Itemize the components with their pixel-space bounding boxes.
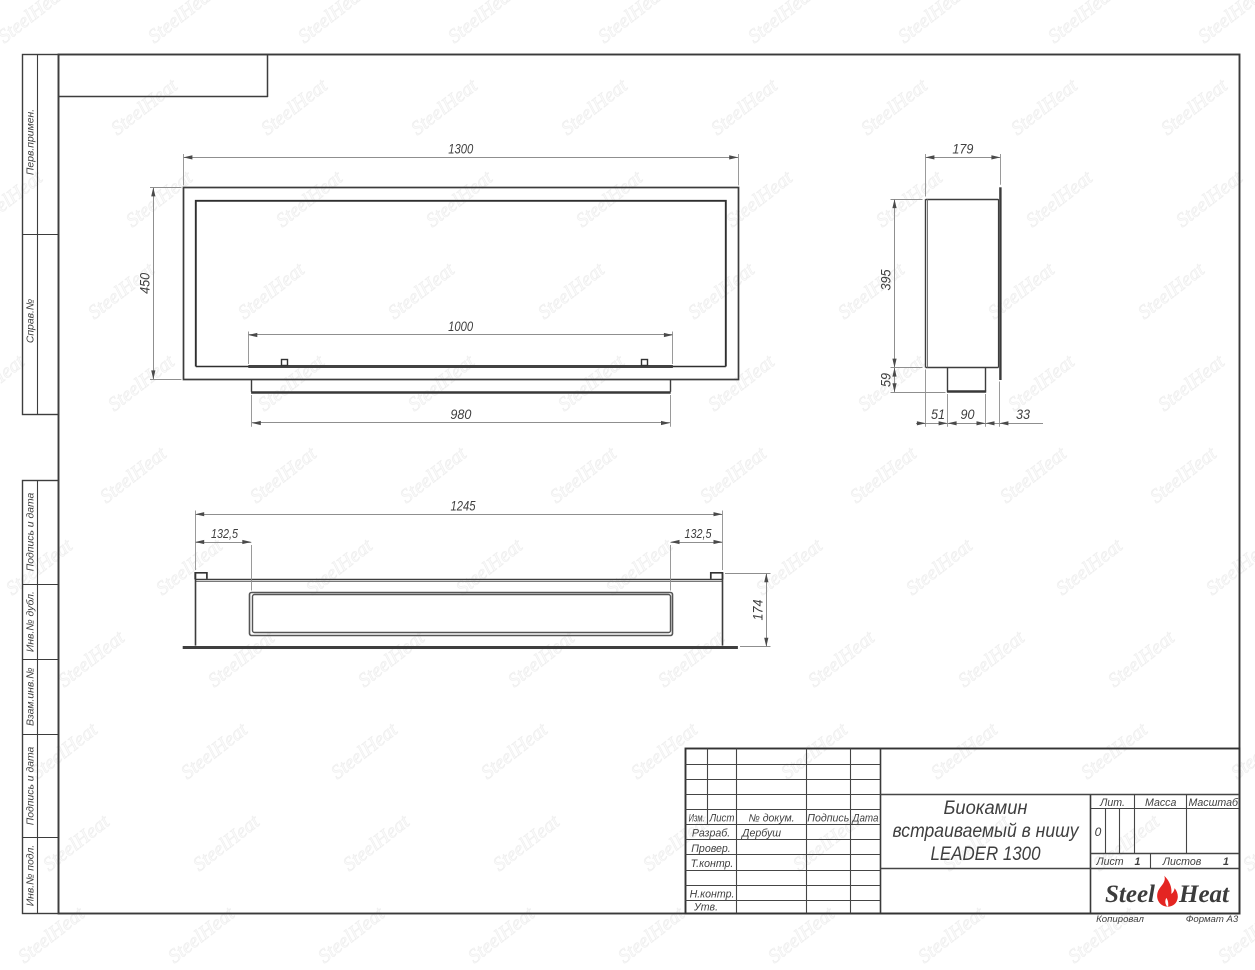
svg-text:SteelHeat: SteelHeat [1157,74,1232,139]
svg-text:SteelHeat: SteelHeat [152,534,227,599]
svg-text:SteelHeat: SteelHeat [104,350,179,415]
svg-text:1: 1 [1135,856,1141,868]
svg-text:SteelHeat: SteelHeat [339,810,414,875]
svg-text:SteelHeat: SteelHeat [96,442,171,507]
svg-text:SteelHeat: SteelHeat [464,902,539,967]
svg-text:SteelHeat: SteelHeat [272,166,347,231]
svg-text:SteelHeat: SteelHeat [954,626,1029,691]
svg-text:SteelHeat: SteelHeat [984,258,1059,323]
svg-text:SteelHeat: SteelHeat [164,902,239,967]
svg-text:встраиваемый в нишу: встраиваемый в нишу [893,821,1080,842]
svg-text:SteelHeat: SteelHeat [246,442,321,507]
svg-text:SteelHeat: SteelHeat [107,74,182,139]
svg-text:Перв.примен.: Перв.примен. [26,109,37,175]
svg-text:SteelHeat: SteelHeat [2,534,77,599]
svg-text:SteelHeat: SteelHeat [122,166,197,231]
svg-text:SteelHeat: SteelHeat [804,626,879,691]
svg-text:SteelHeat: SteelHeat [189,810,264,875]
svg-text:Взам.инв.№: Взам.инв.№ [26,668,37,727]
svg-text:33: 33 [1016,406,1030,422]
svg-text:SteelHeat: SteelHeat [1064,902,1139,967]
svg-text:SteelHeat: SteelHeat [846,442,921,507]
svg-text:Лит.: Лит. [1099,797,1125,809]
svg-text:SteelHeat: SteelHeat [294,0,369,48]
svg-text:SteelHeat: SteelHeat [1052,534,1127,599]
svg-text:SteelHeat: SteelHeat [1202,534,1255,599]
svg-text:Инв.№ подл.: Инв.№ подл. [26,845,37,907]
svg-text:Инв.№ дубл.: Инв.№ дубл. [25,591,37,652]
svg-text:Т.контр.: Т.контр. [691,858,734,870]
svg-text:SteelHeat: SteelHeat [452,534,527,599]
svg-text:Формат А3: Формат А3 [1186,914,1239,925]
svg-text:SteelHeat: SteelHeat [254,350,329,415]
svg-text:SteelHeat: SteelHeat [477,718,552,783]
svg-text:SteelHeat: SteelHeat [996,442,1071,507]
svg-text:SteelHeat: SteelHeat [1239,810,1255,875]
svg-text:Подпись и дата: Подпись и дата [26,746,37,825]
svg-text:Подпись: Подпись [807,812,849,824]
svg-text:SteelHeat: SteelHeat [627,718,702,783]
svg-text:SteelHeat: SteelHeat [0,350,29,415]
svg-text:Биокамин: Биокамин [944,798,1029,819]
svg-text:SteelHeat: SteelHeat [0,166,47,231]
svg-text:SteelHeat: SteelHeat [1154,350,1229,415]
svg-text:SteelHeat: SteelHeat [696,442,771,507]
svg-text:SteelHeat: SteelHeat [557,74,632,139]
svg-text:SteelHeat: SteelHeat [14,902,89,967]
svg-text:SteelHeat: SteelHeat [1194,0,1255,48]
svg-text:№ докум.: № докум. [749,812,795,824]
svg-text:SteelHeat: SteelHeat [144,0,219,48]
svg-text:SteelHeat: SteelHeat [444,0,519,48]
svg-text:SteelHeat: SteelHeat [744,0,819,48]
svg-text:SteelHeat: SteelHeat [707,74,782,139]
svg-text:Листов: Листов [1162,856,1202,868]
svg-text:SteelHeat: SteelHeat [327,718,402,783]
svg-text:Лист: Лист [709,812,735,824]
svg-text:SteelHeat: SteelHeat [1214,902,1255,967]
svg-text:SteelHeat: SteelHeat [777,718,852,783]
svg-text:SteelHeat: SteelHeat [27,718,102,783]
svg-text:SteelHeat: SteelHeat [752,534,827,599]
svg-text:132,5: 132,5 [685,527,713,541]
svg-text:59: 59 [878,373,894,387]
svg-text:980: 980 [450,406,471,422]
svg-text:SteelHeat: SteelHeat [722,166,797,231]
svg-text:SteelHeat: SteelHeat [834,258,909,323]
svg-text:SteelHeat: SteelHeat [1146,442,1221,507]
svg-text:SteelHeat: SteelHeat [914,902,989,967]
svg-text:SteelHeat: SteelHeat [894,0,969,48]
svg-text:SteelHeat: SteelHeat [1044,0,1119,48]
svg-text:Изм.: Изм. [689,812,705,824]
svg-text:Дербуш: Дербуш [741,828,781,840]
svg-text:Провер.: Провер. [691,843,730,855]
svg-text:LEADER 1300: LEADER 1300 [931,844,1041,865]
svg-text:Копировал: Копировал [1096,914,1144,925]
svg-text:1: 1 [1223,856,1229,868]
svg-text:Heat: Heat [1178,881,1230,908]
svg-text:Дата: Дата [852,812,879,824]
svg-text:SteelHeat: SteelHeat [902,534,977,599]
svg-text:1245: 1245 [451,497,476,513]
svg-text:SteelHeat: SteelHeat [39,810,114,875]
svg-text:Масса: Масса [1145,797,1176,809]
svg-text:Разраб.: Разраб. [692,828,730,840]
svg-text:Масштаб: Масштаб [1188,797,1239,809]
svg-text:SteelHeat: SteelHeat [572,166,647,231]
svg-text:SteelHeat: SteelHeat [704,350,779,415]
svg-text:395: 395 [878,269,894,290]
svg-text:SteelHeat: SteelHeat [534,258,609,323]
svg-text:SteelHeat: SteelHeat [302,534,377,599]
svg-text:SteelHeat: SteelHeat [384,258,459,323]
svg-text:Лист: Лист [1095,856,1123,868]
svg-text:450: 450 [137,273,153,294]
svg-text:Справ.№: Справ.№ [26,299,37,343]
svg-text:1300: 1300 [448,141,473,157]
svg-text:SteelHeat: SteelHeat [1022,166,1097,231]
svg-text:SteelHeat: SteelHeat [54,626,129,691]
svg-text:SteelHeat: SteelHeat [177,718,252,783]
svg-text:SteelHeat: SteelHeat [927,718,1002,783]
svg-text:SteelHeat: SteelHeat [684,258,759,323]
svg-text:SteelHeat: SteelHeat [614,902,689,967]
svg-text:SteelHeat: SteelHeat [764,902,839,967]
svg-text:Подпись и дата: Подпись и дата [26,492,37,571]
svg-text:SteelHeat: SteelHeat [1134,258,1209,323]
svg-text:SteelHeat: SteelHeat [857,74,932,139]
svg-text:SteelHeat: SteelHeat [422,166,497,231]
svg-text:SteelHeat: SteelHeat [1104,626,1179,691]
svg-text:SteelHeat: SteelHeat [407,74,482,139]
svg-text:Н.контр.: Н.контр. [690,889,735,901]
svg-text:SteelHeat: SteelHeat [489,810,564,875]
svg-text:90: 90 [961,406,975,422]
svg-text:SteelHeat: SteelHeat [234,258,309,323]
svg-text:SteelHeat: SteelHeat [1007,74,1082,139]
svg-text:179: 179 [952,141,973,157]
svg-text:132,5: 132,5 [211,527,239,541]
svg-text:Утв.: Утв. [693,902,718,914]
svg-text:51: 51 [931,406,945,422]
svg-text:SteelHeat: SteelHeat [314,902,389,967]
svg-text:174: 174 [750,599,766,620]
svg-text:SteelHeat: SteelHeat [1172,166,1247,231]
svg-text:SteelHeat: SteelHeat [602,534,677,599]
svg-text:SteelHeat: SteelHeat [546,442,621,507]
svg-text:SteelHeat: SteelHeat [554,350,629,415]
svg-text:SteelHeat: SteelHeat [1077,718,1152,783]
svg-text:0: 0 [1095,825,1102,839]
svg-text:Steel: Steel [1105,881,1155,908]
svg-text:SteelHeat: SteelHeat [0,0,69,48]
svg-text:SteelHeat: SteelHeat [1227,718,1255,783]
svg-text:SteelHeat: SteelHeat [594,0,669,48]
svg-text:1000: 1000 [448,318,473,334]
